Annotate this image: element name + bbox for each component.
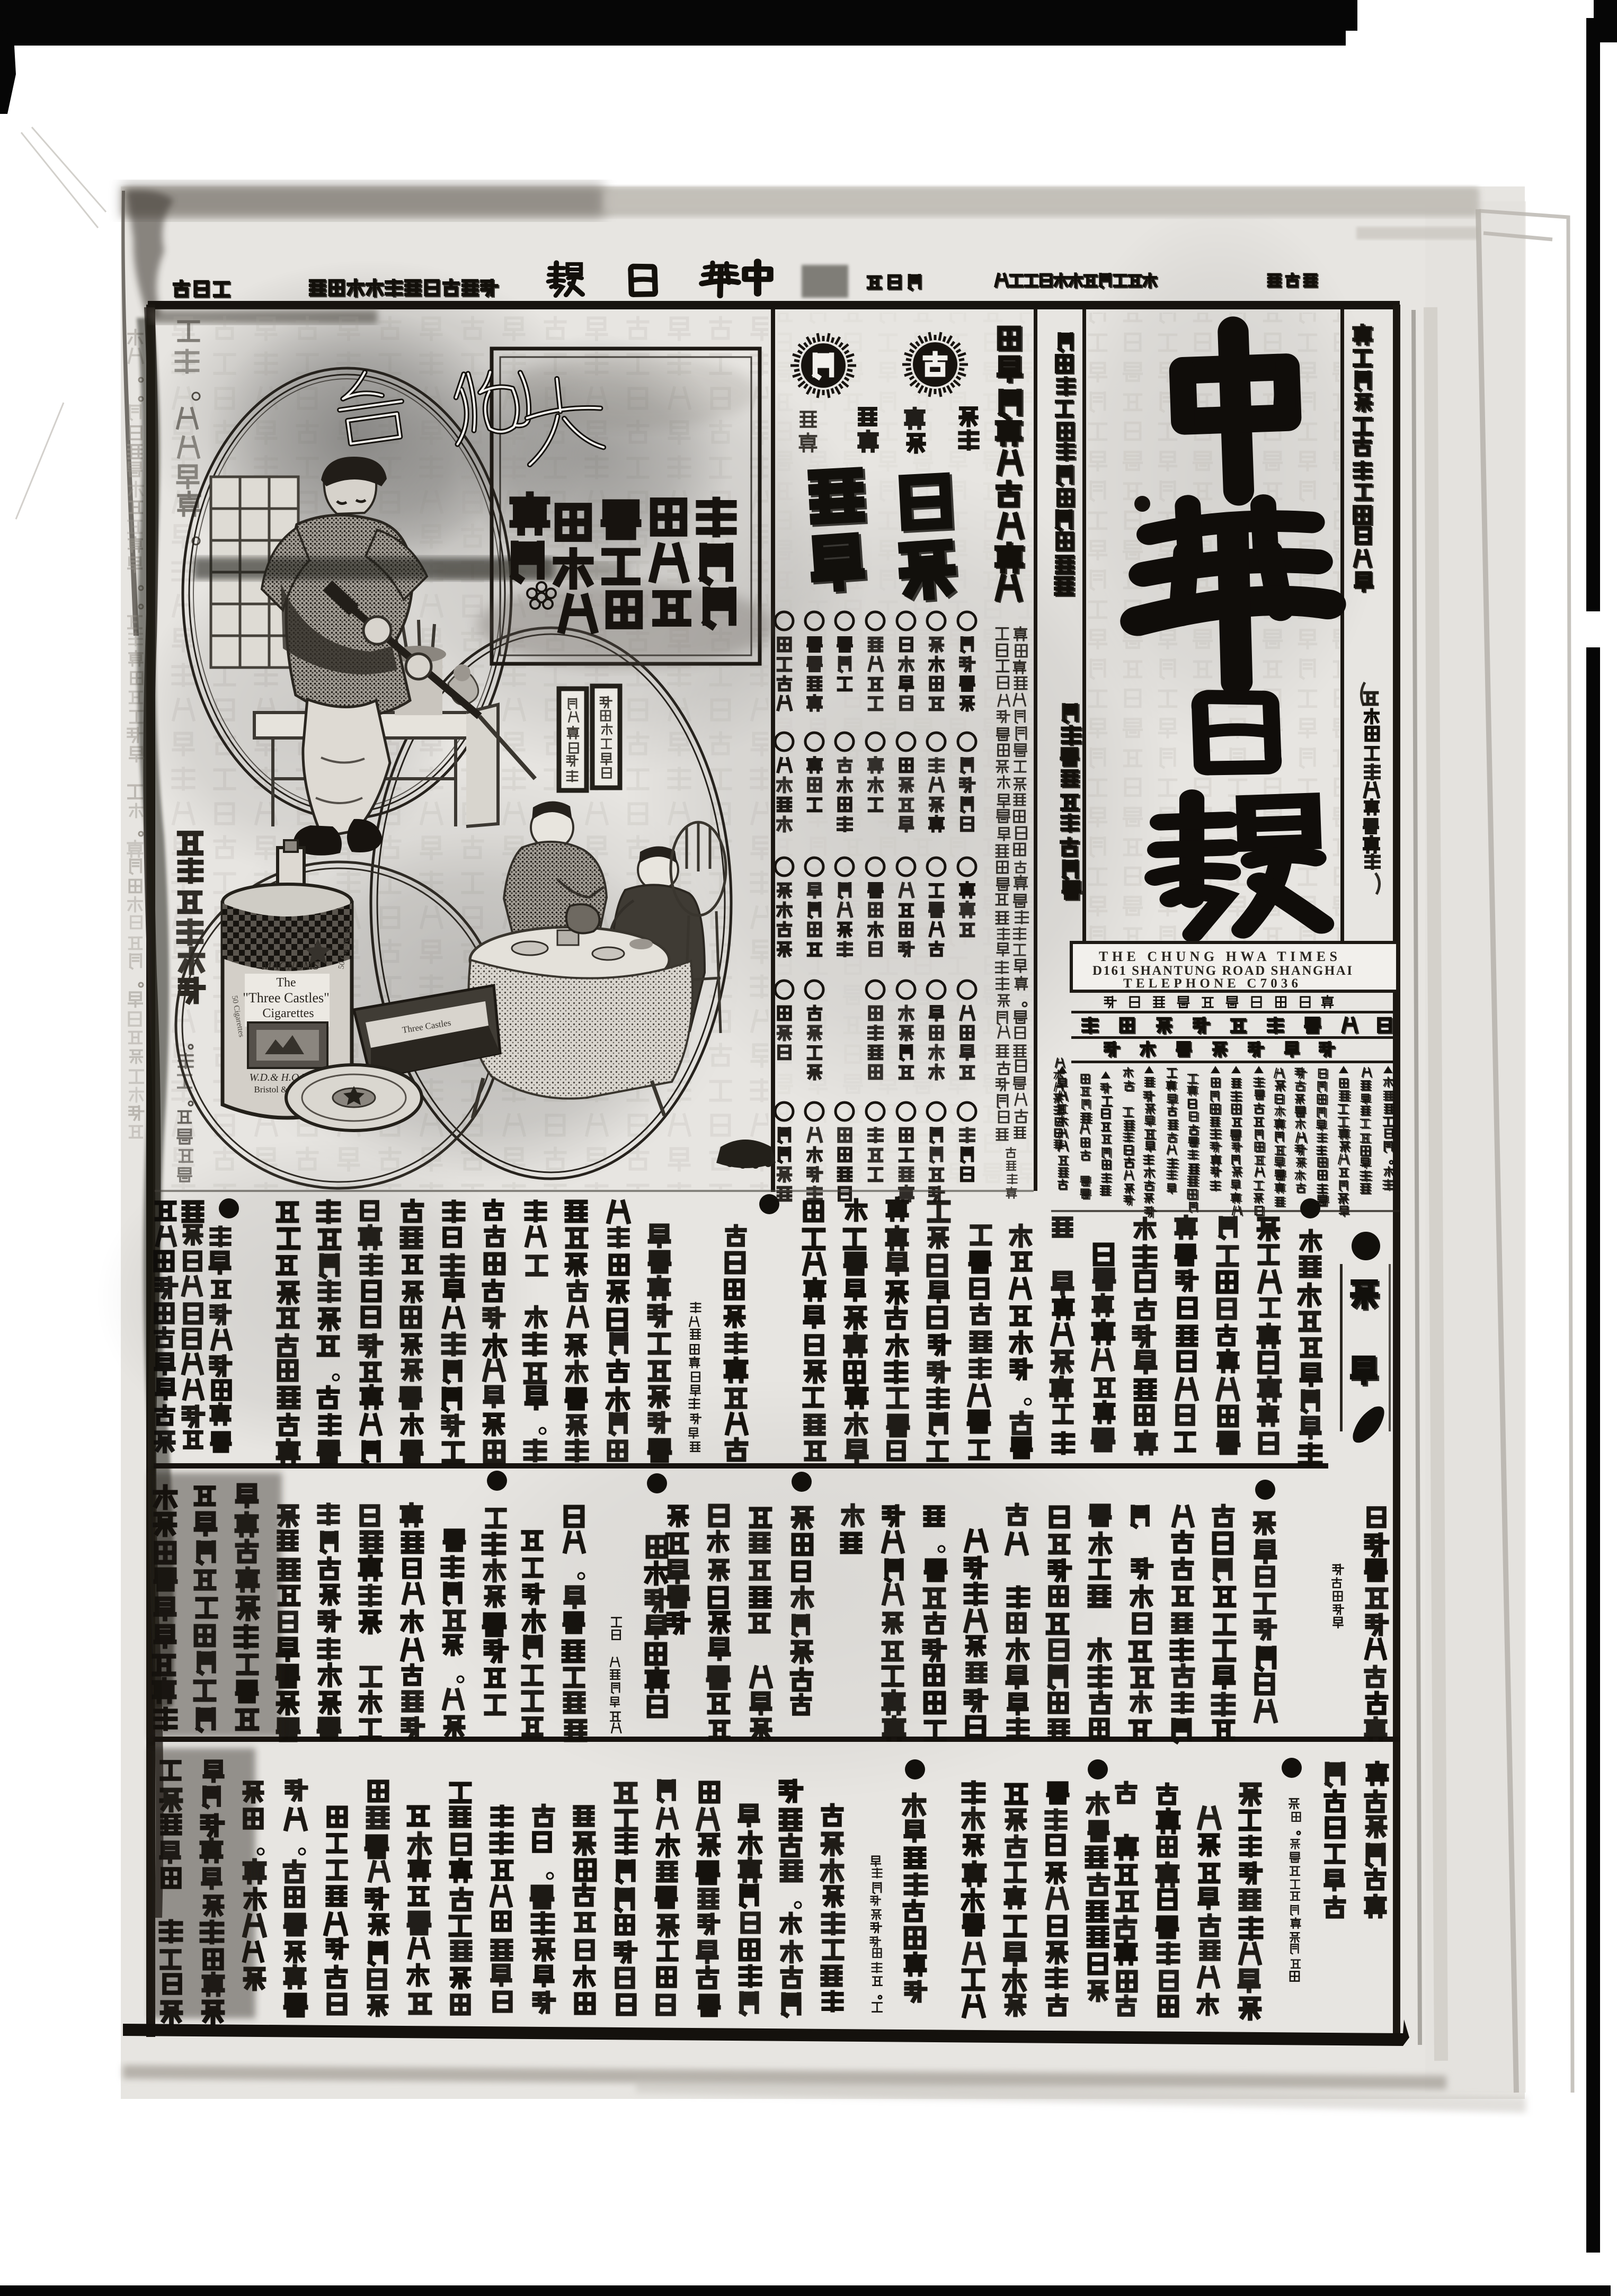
svg-text:THE CHUNG HWA TIMES: THE CHUNG HWA TIMES [1099,949,1337,964]
svg-text:D161 SHANTUNG ROAD SHANGHAI: D161 SHANTUNG ROAD SHANGHAI [1092,964,1352,978]
svg-text:The: The [276,976,296,990]
svg-text:"Three Castles": "Three Castles" [243,990,329,1005]
svg-text:Cigarettes: Cigarettes [262,1007,314,1020]
